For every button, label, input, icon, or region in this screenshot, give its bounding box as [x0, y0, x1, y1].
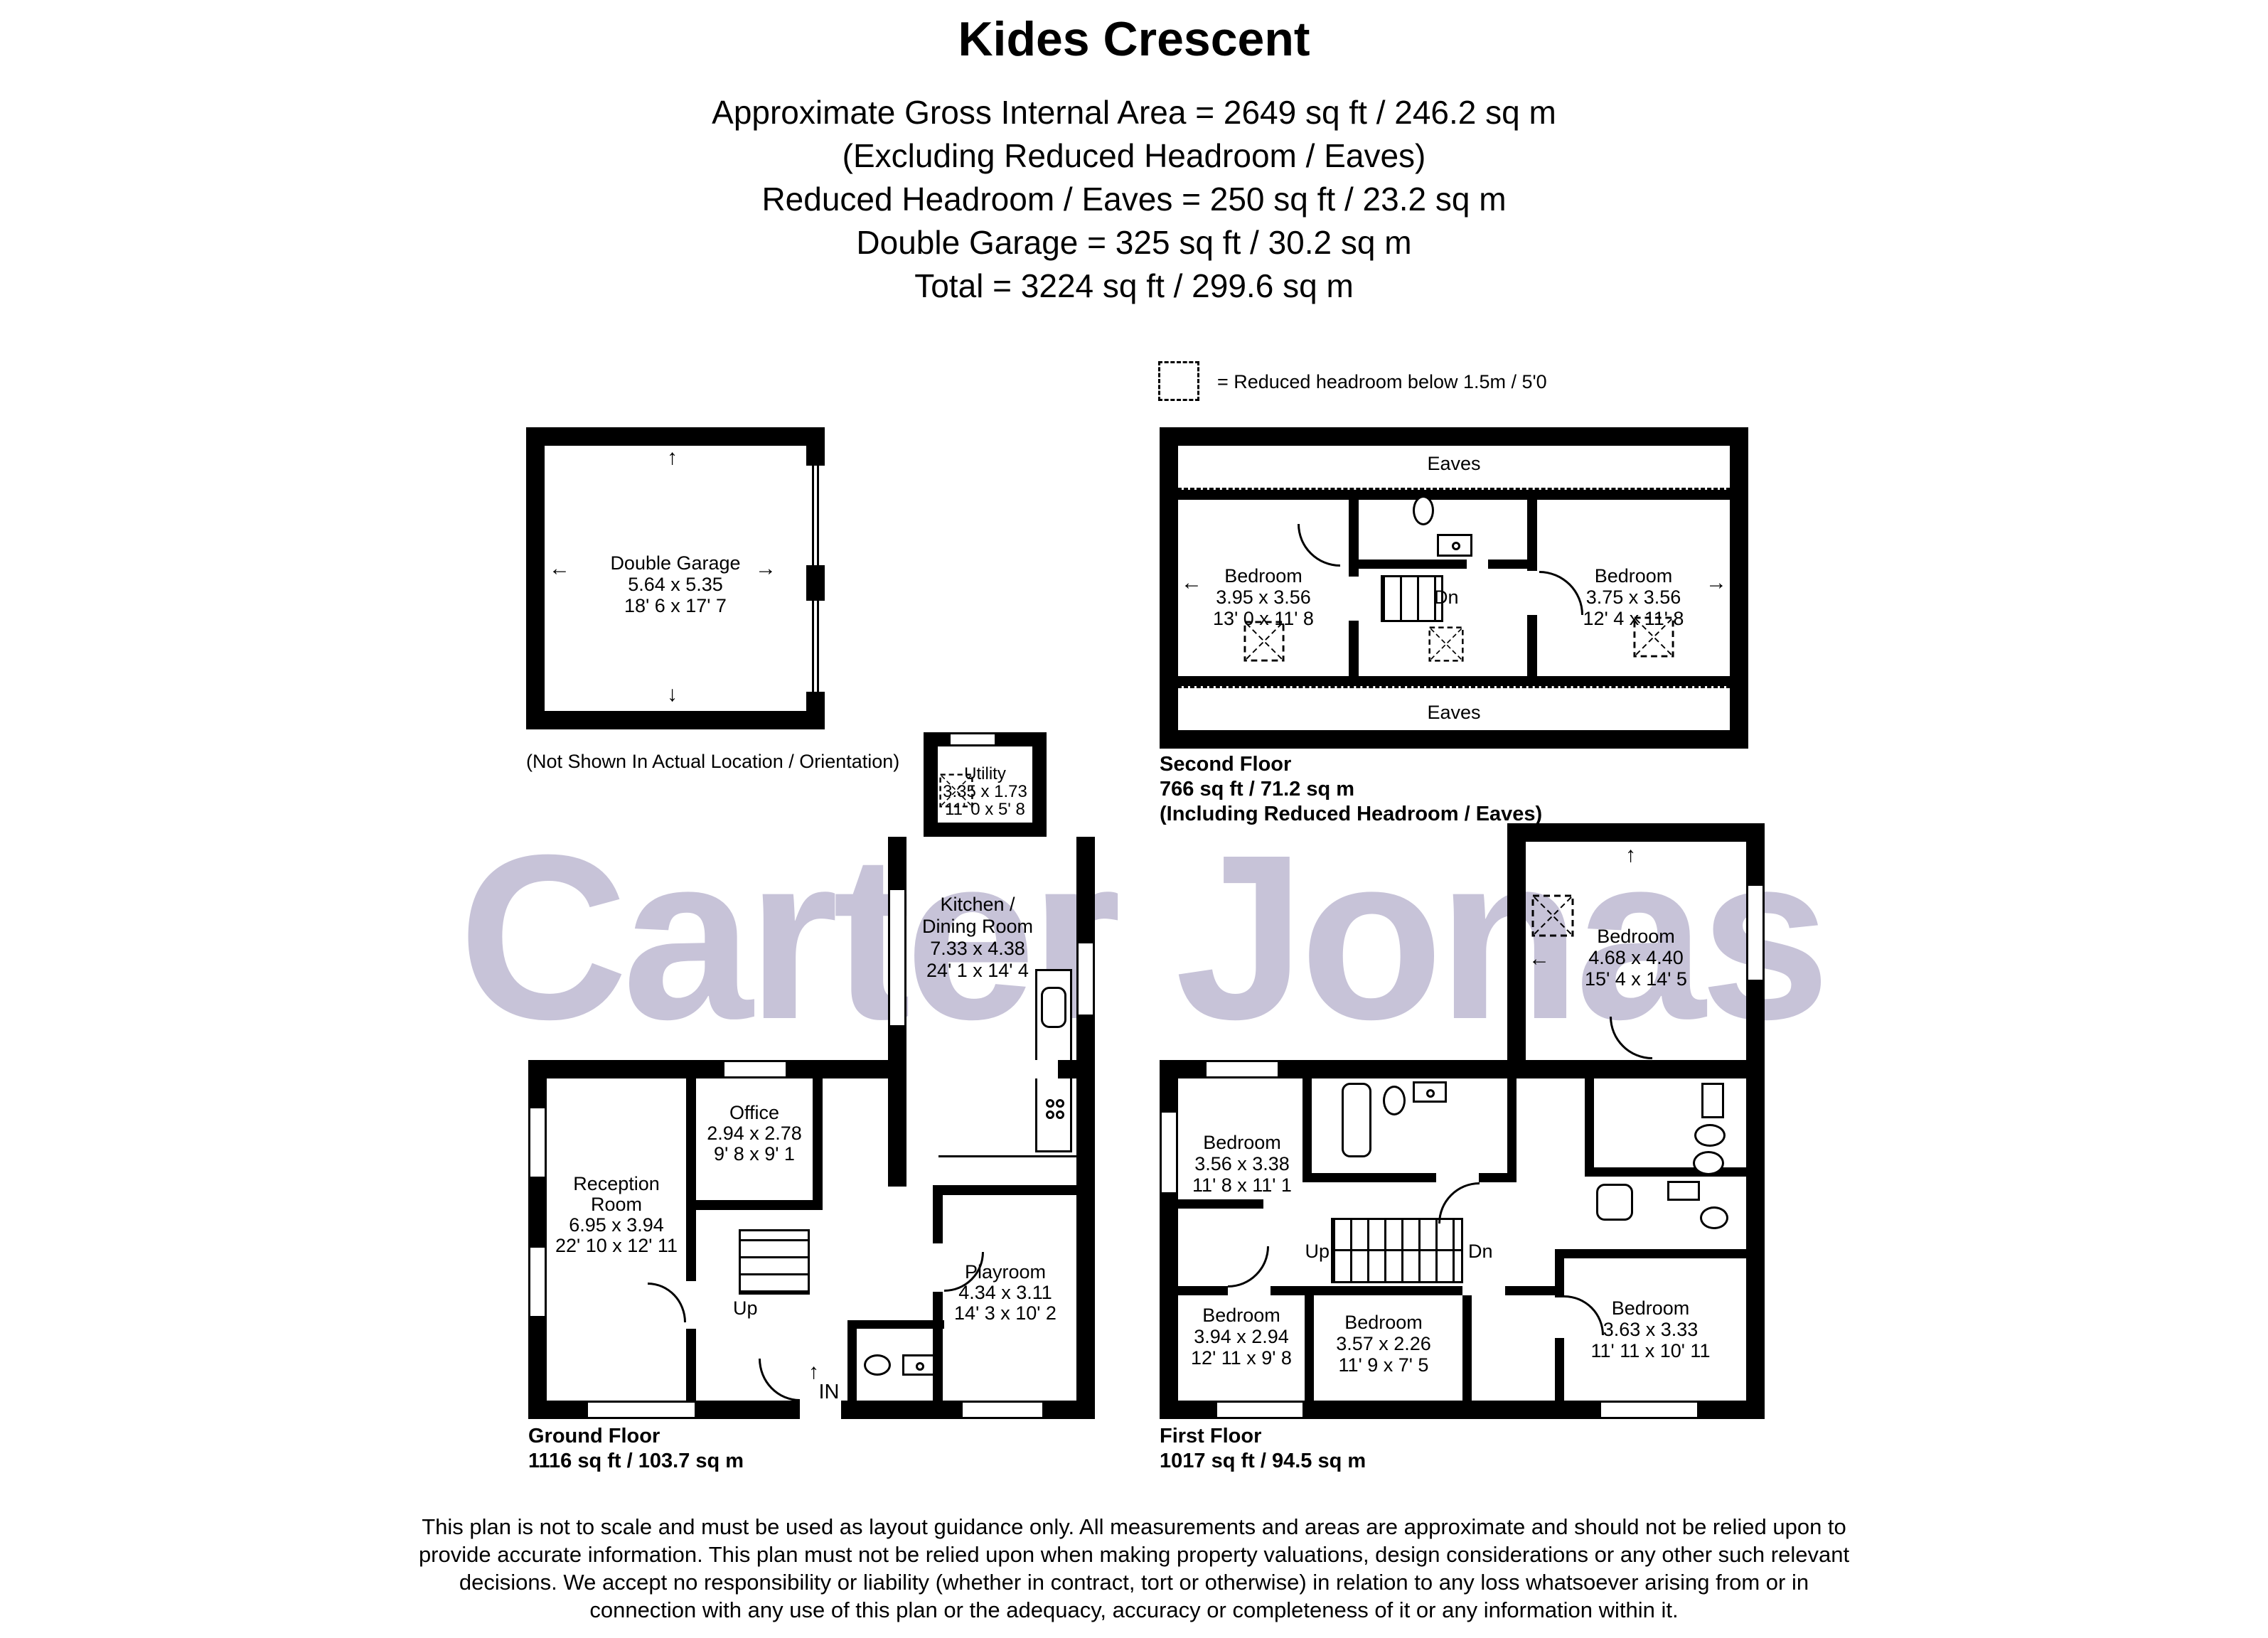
first-floor-caption: First Floor 1017 sq ft / 94.5 sq m [1160, 1424, 1366, 1474]
wall [1505, 1286, 1555, 1295]
garage-plan: ↑ ↓ ← → Double Garage 5.64 x 5.35 18' 6 … [526, 427, 825, 729]
utility-label: Utility 3.35 x 1.73 11' 0 x 5' 8 [924, 765, 1047, 818]
window [528, 1108, 547, 1177]
room-size-metric: 2.94 x 2.78 [686, 1123, 823, 1144]
bedroom-label: Bedroom 3.94 x 2.94 12' 11 x 9' 8 [1178, 1305, 1305, 1369]
sink-drain [1426, 1089, 1435, 1098]
bedroom-label: Bedroom 4.68 x 4.40 15' 4 x 14' 5 [1526, 926, 1746, 990]
stairs-divider [1331, 1249, 1463, 1251]
window [528, 1248, 547, 1316]
room-size-metric: 7.33 x 4.38 [885, 938, 1070, 960]
sink-drain [916, 1362, 924, 1371]
room-size-imperial: 12' 11 x 9' 8 [1178, 1347, 1305, 1369]
room-name: Kitchen / [885, 894, 1070, 916]
utility-plan: Utility 3.35 x 1.73 11' 0 x 5' 8 [924, 732, 1047, 837]
down-arrow-icon: ↓ [667, 684, 678, 705]
sink [1437, 534, 1472, 557]
room-size-metric: 3.57 x 2.26 [1305, 1333, 1462, 1354]
wall [1585, 1078, 1594, 1167]
wall [1462, 1295, 1472, 1401]
wall [686, 1200, 823, 1210]
wall [686, 1329, 696, 1401]
room-name: Double Garage [545, 552, 806, 574]
garage-note: (Not Shown In Actual Location / Orientat… [526, 751, 899, 773]
bedroom-label: Bedroom 3.95 x 3.56 13' 0 x 11' 8 [1178, 565, 1349, 629]
sink-drain [1452, 542, 1460, 550]
door-arc [648, 1283, 686, 1322]
wall [1178, 676, 1730, 686]
bedroom-label: Bedroom 3.56 x 3.38 11' 8 x 11' 1 [1178, 1132, 1306, 1196]
room-size-imperial: 24' 1 x 14' 4 [885, 960, 1070, 982]
total-area: Total = 3224 sq ft / 299.6 sq m [0, 264, 2268, 308]
window [1207, 1060, 1278, 1078]
second-floor-plan: Eaves Eaves Dn [1160, 427, 1748, 749]
wall [1479, 1173, 1517, 1182]
room-size-metric: 3.95 x 3.56 [1178, 587, 1349, 608]
garage-area: Double Garage = 325 sq ft / 30.2 sq m [0, 221, 2268, 264]
room-size-imperial: 14' 3 x 10' 2 [934, 1303, 1076, 1324]
room-name: Reception [547, 1174, 686, 1194]
garage-label: Double Garage 5.64 x 5.35 18' 6 x 17' 7 [545, 552, 806, 616]
room-size-imperial: 11' 8 x 11' 1 [1178, 1174, 1306, 1196]
door-arc [759, 1359, 800, 1401]
kitchen-opening [906, 1060, 1058, 1078]
wall [1488, 560, 1537, 569]
room-size-metric: 4.68 x 4.40 [1526, 947, 1746, 968]
reduced-headroom-area: Reduced Headroom / Eaves = 250 sq ft / 2… [0, 178, 2268, 221]
second-floor-caption: Second Floor 766 sq ft / 71.2 sq m (Incl… [1160, 752, 1542, 827]
bathtub [1342, 1083, 1371, 1157]
room-name: Bedroom [1178, 1132, 1306, 1153]
window [1160, 1113, 1178, 1192]
room-size-metric: 5.64 x 5.35 [545, 574, 806, 595]
shower [1596, 1184, 1633, 1221]
room-size-imperial: 22' 10 x 12' 11 [547, 1236, 686, 1256]
bedroom-label: Bedroom 3.75 x 3.56 12' 4 x 11' 8 [1537, 565, 1730, 629]
reduced-headroom-legend-swatch [1158, 361, 1199, 401]
reception-label: Reception Room 6.95 x 3.94 22' 10 x 12' … [547, 1174, 686, 1256]
window [1601, 1401, 1697, 1419]
door-arc [1298, 524, 1340, 567]
wall [1507, 1078, 1517, 1173]
legend-label: = Reduced headroom below 1.5m / 5'0 [1217, 371, 1547, 393]
toilet [1383, 1086, 1406, 1115]
stairs-up-label: Up [733, 1297, 776, 1319]
eaves-label: Eaves [1427, 453, 1480, 475]
stairs-up-label: Up [1290, 1241, 1330, 1262]
room-size-imperial: 12' 4 x 11' 8 [1537, 608, 1730, 629]
wall [806, 565, 825, 601]
bay-window [963, 1401, 1042, 1419]
stairs-down-label: Dn [1434, 587, 1477, 608]
floorplan-page: Kides Crescent Approximate Gross Interna… [0, 0, 2268, 1638]
toilet [1693, 1151, 1724, 1175]
first-floor-bedroom-extension: ↑ ← Bedroom 4.68 x 4.40 15' 4 x 14' 5 [1507, 823, 1765, 1078]
room-size-metric: 3.63 x 3.33 [1555, 1319, 1746, 1340]
room-size-metric: 3.56 x 3.38 [1178, 1153, 1306, 1174]
wall [1271, 1286, 1462, 1295]
room-size-imperial: 13' 0 x 11' 8 [1178, 608, 1349, 629]
property-name: Kides Crescent [0, 11, 2268, 67]
door-arc [1438, 1182, 1480, 1224]
room-size-metric: 3.94 x 2.94 [1178, 1326, 1305, 1347]
room-name: Playroom [934, 1262, 1076, 1283]
wall [1178, 1286, 1228, 1295]
first-floor-plan: Up Dn Bedroom 3.56 x 3.38 11' 8 x 11' 1 … [1160, 1060, 1765, 1419]
room-name: Bedroom [1305, 1312, 1462, 1333]
gross-internal-area: Approximate Gross Internal Area = 2649 s… [0, 91, 2268, 134]
wall [1349, 621, 1359, 676]
sink [1413, 1081, 1447, 1103]
window [1746, 886, 1765, 980]
room-size-imperial: 11' 9 x 7' 5 [1305, 1354, 1462, 1376]
wall [1178, 1199, 1263, 1209]
room-size-imperial: 15' 4 x 14' 5 [1526, 968, 1746, 990]
wall [847, 1320, 944, 1329]
eaves-label: Eaves [1427, 702, 1480, 724]
window [724, 1060, 786, 1078]
room-name: Dining Room [885, 916, 1070, 938]
door-arc [1228, 1246, 1269, 1288]
wall [1555, 1258, 1564, 1297]
room-name: Room [547, 1194, 686, 1215]
ground-floor-caption: Ground Floor 1116 sq ft / 103.7 sq m [528, 1424, 744, 1474]
room-name: Utility [924, 765, 1047, 783]
reduced-headroom-marker-icon [1428, 626, 1464, 662]
room-size-imperial: 11' 0 x 5' 8 [924, 801, 1047, 818]
wall [1303, 1173, 1436, 1182]
room-size-metric: 3.35 x 1.73 [924, 783, 1047, 801]
wall [933, 1185, 1076, 1195]
eaves-zone-top: Eaves [1171, 437, 1737, 490]
toilet [1694, 1124, 1726, 1147]
toilet [864, 1354, 891, 1376]
up-arrow-icon: ↑ [667, 447, 678, 469]
window [1217, 1401, 1303, 1419]
office-label: Office 2.94 x 2.78 9' 8 x 9' 1 [686, 1103, 823, 1165]
sink [1701, 1083, 1724, 1118]
room-size-metric: 6.95 x 3.94 [547, 1215, 686, 1236]
room-name: Bedroom [1537, 565, 1730, 587]
eaves-zone-bottom: Eaves [1171, 686, 1737, 739]
toilet [1413, 496, 1434, 525]
entrance-arrow-icon: ↑ [808, 1361, 819, 1383]
bedroom-label: Bedroom 3.63 x 3.33 11' 11 x 10' 11 [1555, 1297, 1746, 1361]
toilet [1700, 1206, 1728, 1229]
room-name: Bedroom [1526, 926, 1746, 947]
room-name: Bedroom [1178, 1305, 1305, 1326]
playroom-label: Playroom 4.34 x 3.11 14' 3 x 10' 2 [934, 1262, 1076, 1324]
room-size-metric: 4.34 x 3.11 [934, 1283, 1076, 1303]
up-arrow-icon: ↑ [1625, 845, 1636, 866]
wall [1359, 560, 1467, 569]
wall [1178, 490, 1730, 500]
wall [1527, 615, 1537, 676]
area-summary: Approximate Gross Internal Area = 2649 s… [0, 91, 2268, 308]
room-size-imperial: 11' 11 x 10' 11 [1555, 1340, 1746, 1361]
stairs-down-label: Dn [1468, 1241, 1511, 1262]
window [951, 732, 995, 746]
wall [933, 1185, 943, 1243]
room-name: Bedroom [1178, 565, 1349, 587]
sink [902, 1354, 935, 1376]
staircase [739, 1229, 810, 1295]
room-size-metric: 3.75 x 3.56 [1537, 587, 1730, 608]
sink [1667, 1181, 1700, 1201]
wall [1555, 1249, 1746, 1258]
window [1076, 943, 1095, 1015]
wall [1349, 500, 1359, 577]
room-size-imperial: 18' 6 x 17' 7 [545, 595, 806, 616]
page-title: Kides Crescent [0, 11, 2268, 67]
ground-floor-plan: Up ↑ IN Reception Room 6.95 x 3.94 22' 1… [528, 1060, 1095, 1419]
entrance-label: IN [797, 1381, 861, 1403]
kitchen-sink [1041, 987, 1066, 1028]
room-size-imperial: 9' 8 x 9' 1 [686, 1144, 823, 1165]
kitchen-label: Kitchen / Dining Room 7.33 x 4.38 24' 1 … [885, 894, 1070, 982]
bay-window [588, 1401, 695, 1419]
bedroom-label: Bedroom 3.57 x 2.26 11' 9 x 7' 5 [1305, 1312, 1462, 1376]
disclaimer: This plan is not to scale and must be us… [0, 1513, 2268, 1624]
excluding-note: (Excluding Reduced Headroom / Eaves) [0, 134, 2268, 178]
room-name: Office [686, 1103, 823, 1123]
room-name: Bedroom [1555, 1297, 1746, 1319]
door-arc [1610, 1017, 1652, 1059]
